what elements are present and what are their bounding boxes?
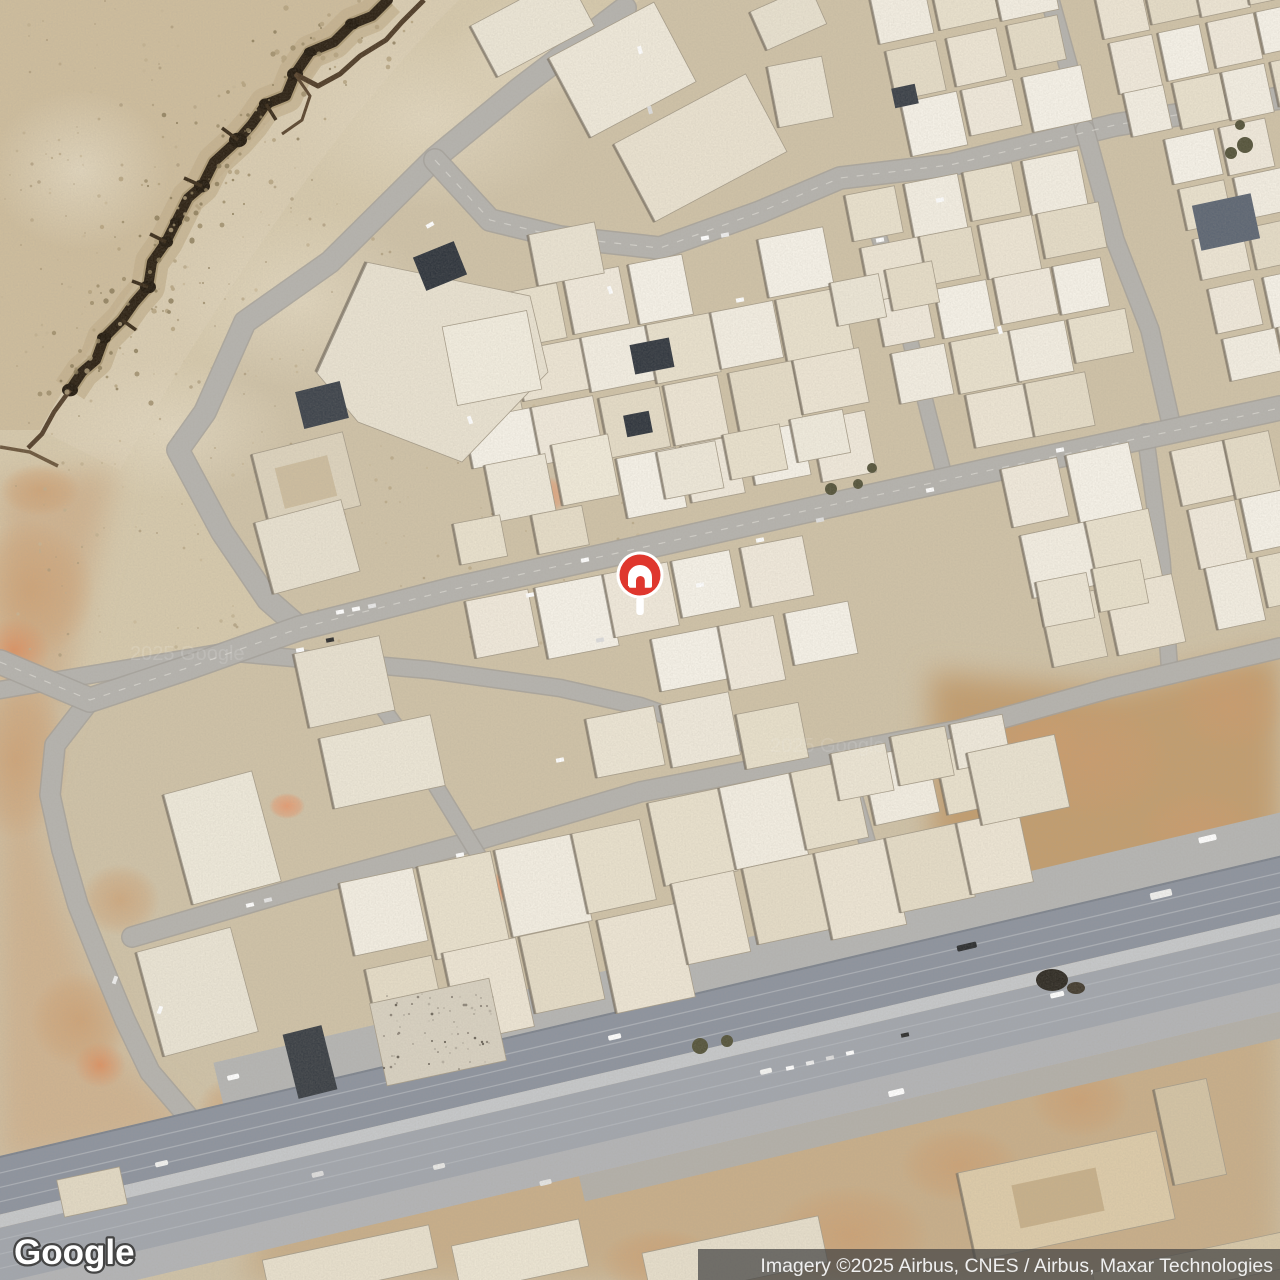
svg-text:Imagery ©2025 Airbus, CNES / A: Imagery ©2025 Airbus, CNES / Airbus, Max… — [760, 1255, 1273, 1277]
svg-text:Google: Google — [14, 1233, 135, 1272]
